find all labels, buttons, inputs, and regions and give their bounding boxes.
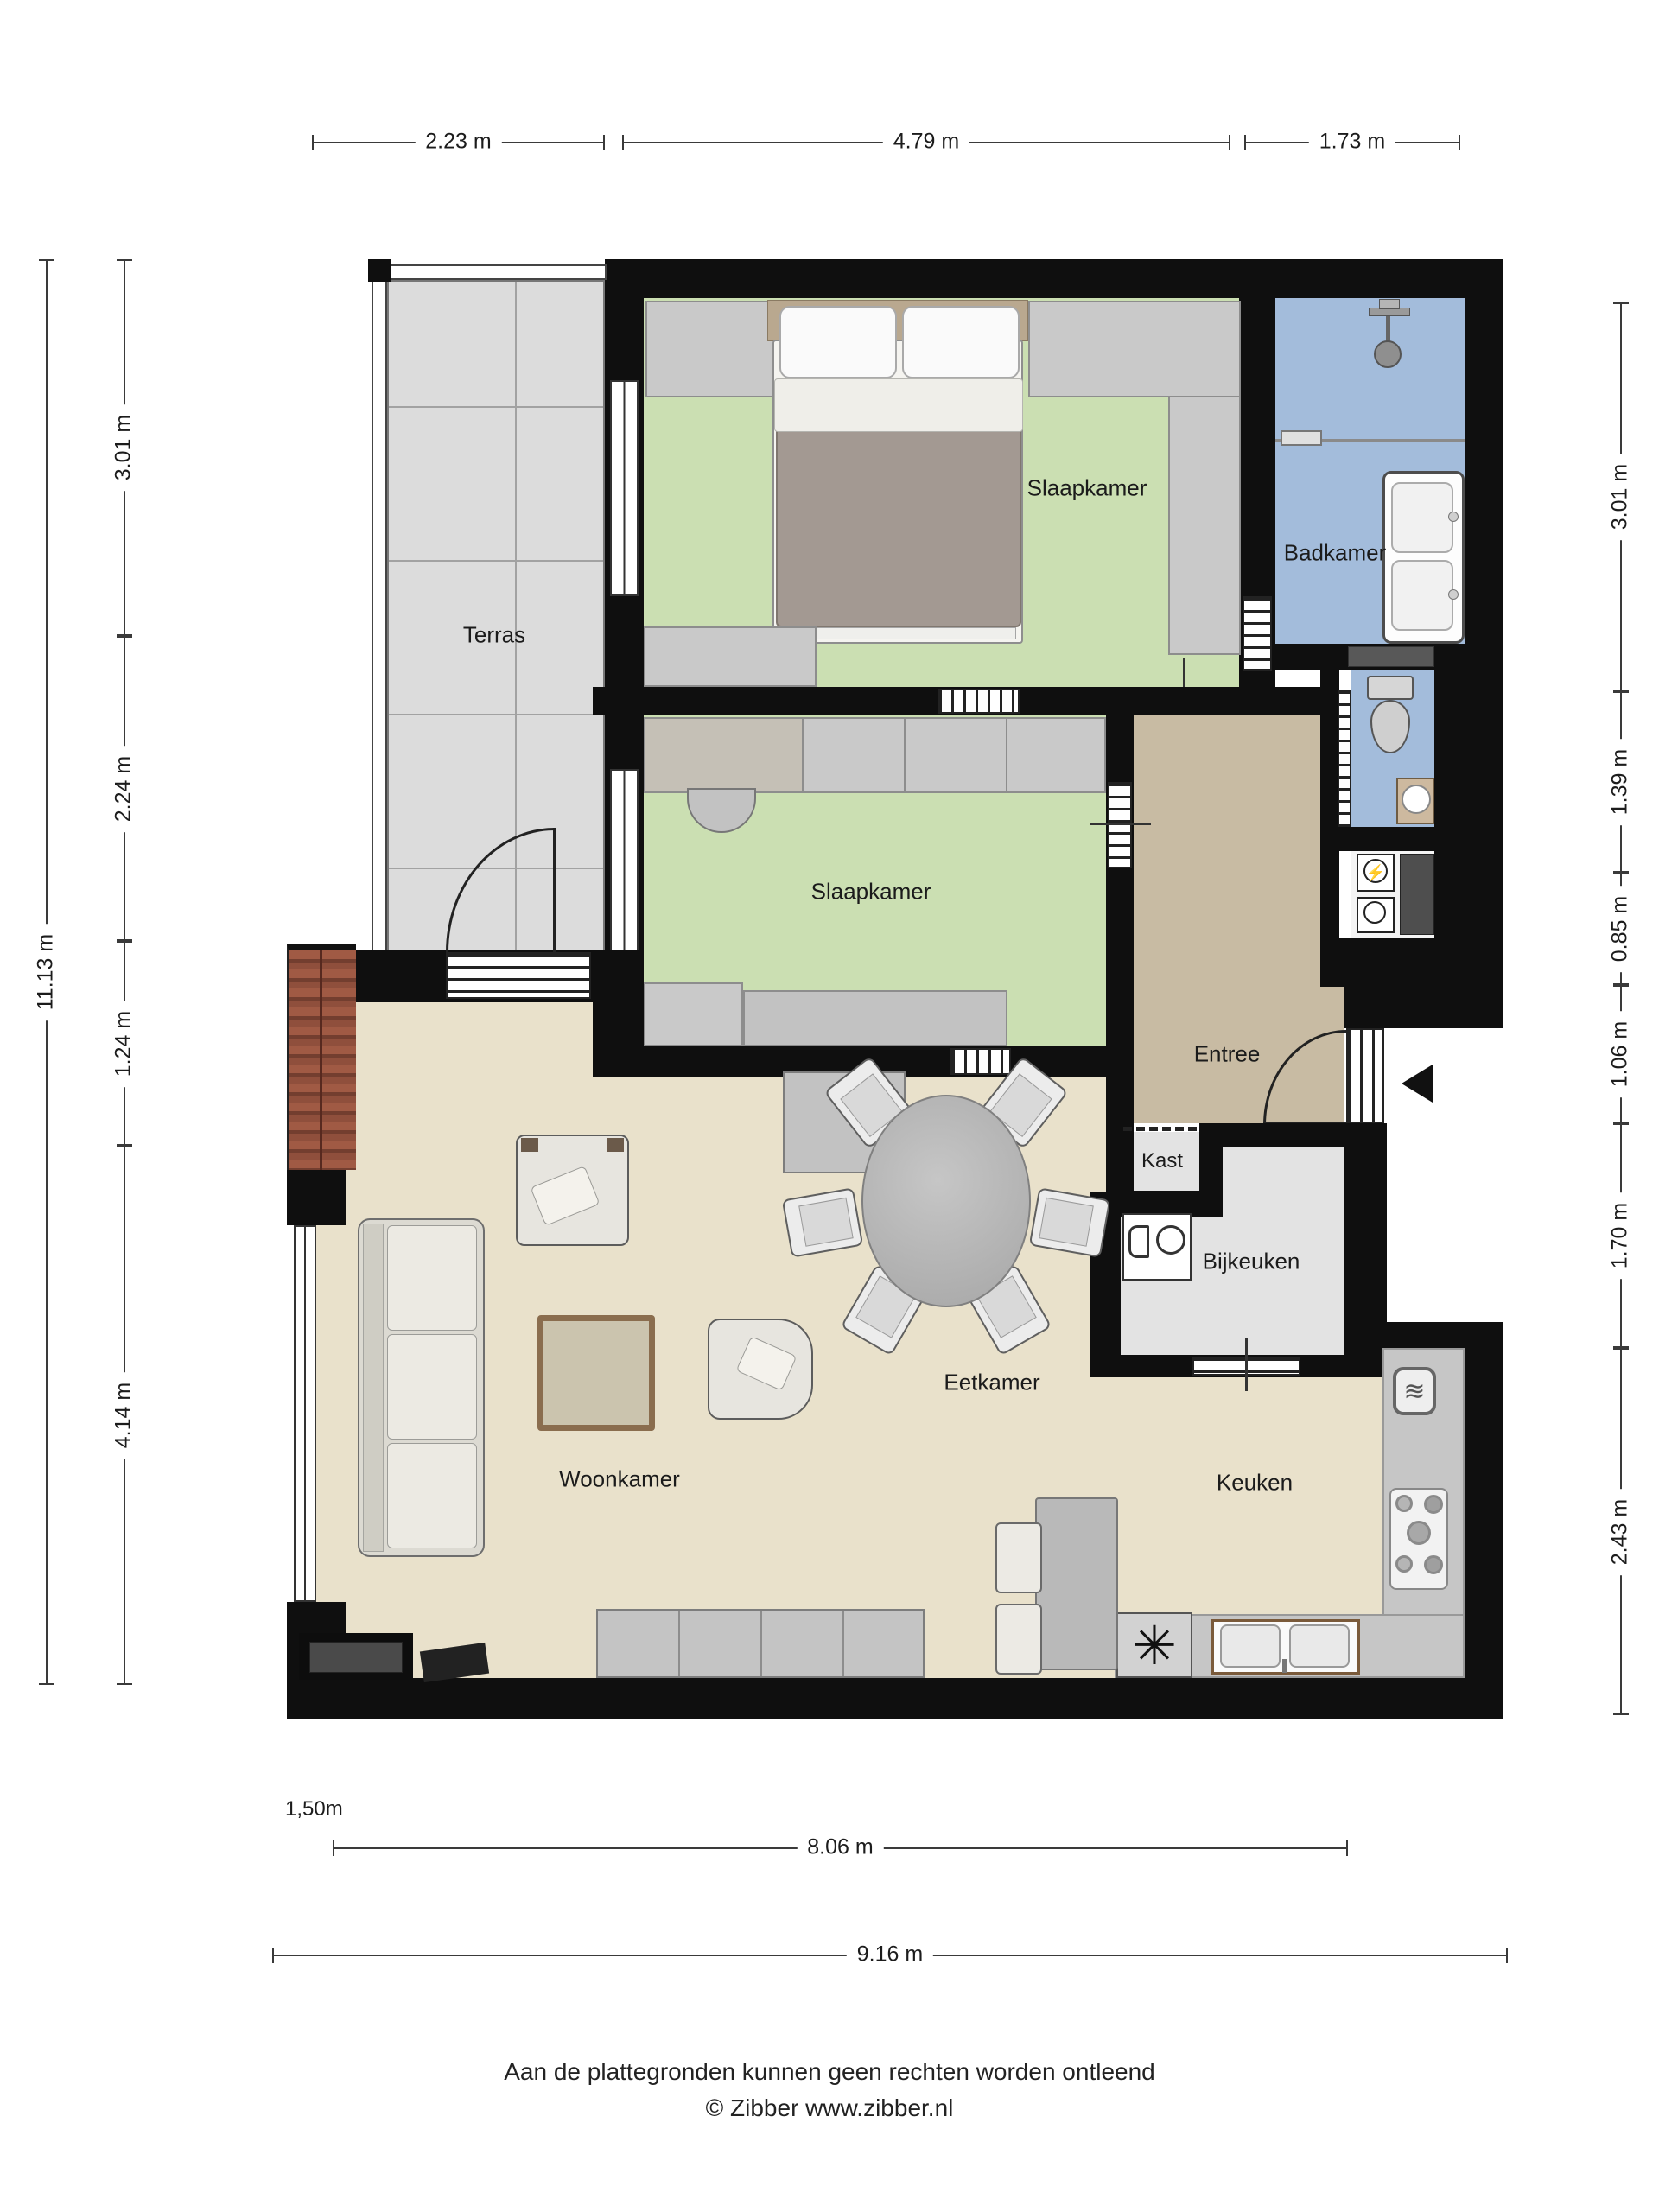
entree-wall-tick: [1090, 823, 1151, 825]
sink-tap-bottom: [1448, 589, 1459, 600]
meter-dial-1: ⚡: [1363, 859, 1388, 883]
dim-left-3: 1.24 m: [124, 941, 125, 1146]
kast-dashed-line: [1123, 1127, 1210, 1131]
wardrobe-slaapkamer2: [802, 717, 1106, 793]
kitchen-table: [1035, 1497, 1118, 1670]
wall-kast-right: [1199, 1123, 1223, 1191]
dining-chair-4: [1029, 1187, 1111, 1258]
dim-bottom-inner: 8.06 m: [333, 1847, 1348, 1849]
hob-burner-2: [1424, 1495, 1443, 1514]
terras-grid-h1: [389, 406, 603, 408]
toilet-tank: [1367, 676, 1414, 700]
label-eetkamer: Eetkamer: [944, 1370, 1039, 1396]
label-keuken: Keuken: [1217, 1470, 1293, 1497]
dim-right-3: 0.85 m: [1620, 873, 1622, 985]
sofa-back: [363, 1224, 384, 1552]
hob-burner-4: [1395, 1555, 1413, 1573]
badkamer-door-opening: [1243, 596, 1272, 671]
dim-top-3: 1.73 m: [1244, 142, 1460, 143]
label-slaapkamer2: Slaapkamer: [811, 879, 931, 906]
terras-corner-post: [368, 259, 391, 282]
dim-top-2: 4.79 m: [622, 142, 1230, 143]
label-kast: Kast: [1141, 1149, 1183, 1173]
bed-pillow-left: [779, 306, 897, 378]
hob-burner-1: [1395, 1495, 1413, 1512]
wardrobe2-seam1: [904, 719, 906, 791]
wall-slaapkamer2-left-col: [593, 1002, 644, 1077]
front-door-frame: [1346, 1028, 1384, 1123]
entree-floor-a: [1134, 715, 1320, 987]
desk: [644, 717, 804, 793]
wall-entree-top: [1106, 687, 1320, 715]
wardrobe2-seam2: [1006, 719, 1007, 791]
roof-tiles-seam: [320, 950, 322, 1170]
terras-grid-h3: [389, 714, 603, 715]
terras-railing-left: [372, 264, 387, 956]
wardrobe-right: [1028, 301, 1241, 397]
footer-credit: © Zibber www.zibber.nl: [0, 2094, 1659, 2122]
hob-burner-3: [1407, 1521, 1431, 1545]
wardrobe-left: [645, 301, 775, 397]
terras-wall-window-lower: [610, 769, 639, 972]
dim-right-4: 1.06 m: [1620, 985, 1622, 1123]
bed-pillow-right: [902, 306, 1020, 378]
slaapkamer1-door-opening: [938, 689, 1020, 714]
heater-icon: ≋: [1393, 1367, 1436, 1415]
dining-chair-3: [782, 1187, 864, 1258]
meterkast-panel: [1400, 854, 1434, 935]
meter-dial-2: [1363, 901, 1386, 924]
sink-bowl-top: [1391, 482, 1453, 553]
wall-below-meterkast: [1320, 938, 1503, 987]
slaapkamer2-opening: [950, 1048, 1011, 1075]
dim-bottom-offset-label: 1,50m: [285, 1797, 343, 1821]
terras-railing-top: [372, 264, 607, 280]
dim-right-1: 3.01 m: [1620, 302, 1622, 691]
dim-right-2: 1.39 m: [1620, 691, 1622, 873]
wall-bottom: [287, 1678, 1503, 1719]
hob-burner-5: [1424, 1555, 1443, 1574]
wall-wc-right-filler: [1434, 670, 1465, 938]
dresser-small: [644, 982, 743, 1046]
kitchen-sink-bowl-left: [1220, 1624, 1281, 1668]
label-slaapkamer1: Slaapkamer: [1027, 475, 1147, 502]
slaapkamer1-dresser: [644, 626, 817, 687]
kitchen-chair-2: [995, 1604, 1042, 1675]
wall-left-mid: [287, 1170, 346, 1225]
label-woonkamer: Woonkamer: [559, 1466, 680, 1493]
dim-bottom-outer: 9.16 m: [272, 1955, 1508, 1956]
living-window-left: [294, 1225, 316, 1602]
kitchen-sink-bowl-right: [1289, 1624, 1350, 1668]
entree-door-opening: [1108, 782, 1132, 868]
dining-table: [861, 1095, 1031, 1307]
dim-left-2: 2.24 m: [124, 636, 125, 941]
badkamer-radiator: [1348, 646, 1434, 667]
fan-appliance: ✳: [1116, 1612, 1192, 1678]
dim-top-1: 2.23 m: [312, 142, 605, 143]
sofa-cushion-1: [387, 1225, 477, 1331]
bed-duvet-fold: [774, 378, 1023, 432]
sideboard-seam2: [760, 1611, 762, 1676]
wardrobe-right-l: [1168, 396, 1241, 655]
wall-wc-meterkast: [1320, 827, 1465, 851]
sideboard-seam3: [842, 1611, 844, 1676]
tv-screen-wall: [309, 1642, 403, 1673]
dim-left-total: 11.13 m: [46, 259, 48, 1685]
wall-right-lower: [1465, 1322, 1503, 1719]
wall-top: [605, 259, 1503, 298]
label-bijkeuken: Bijkeuken: [1203, 1249, 1300, 1275]
wall-notch-top: [1344, 987, 1503, 1028]
armchair-top-arm-left: [521, 1138, 538, 1152]
wall-bijkeuken-top: [1223, 1123, 1344, 1147]
terras-wall-window-upper: [610, 380, 639, 596]
shower-stem: [1386, 316, 1390, 342]
shower-head-icon: [1374, 340, 1402, 368]
bijkeuken-tick: [1245, 1338, 1248, 1391]
dim-left-1: 3.01 m: [124, 259, 125, 636]
terras-door-threshold: [446, 952, 591, 999]
floorplan-page: ⚡ ≋ ✳: [0, 0, 1659, 2212]
wc-window: [1338, 690, 1351, 828]
label-terras: Terras: [463, 622, 525, 649]
kitchen-tap: [1282, 1659, 1287, 1673]
bed-duvet: [776, 420, 1021, 627]
wall-bijkeuken-right: [1344, 1123, 1387, 1377]
dim-right-5: 1.70 m: [1620, 1123, 1622, 1348]
sink-tap-top: [1448, 512, 1459, 522]
label-entree: Entree: [1194, 1041, 1261, 1068]
sink-bowl-bottom: [1391, 560, 1453, 631]
badkamer-shelf: [1281, 430, 1322, 446]
wall-wc-left: [1320, 670, 1339, 938]
terras-grid-h2: [389, 560, 603, 562]
washing-machine-drum: [1156, 1225, 1185, 1255]
shower-valve: [1379, 299, 1400, 309]
dresser-long: [743, 990, 1007, 1046]
washing-machine-door: [1128, 1225, 1149, 1258]
footer-disclaimer: Aan de plattegronden kunnen geen rechten…: [0, 2058, 1659, 2086]
armchair-top-arm-right: [607, 1138, 624, 1152]
sideboard-seam1: [678, 1611, 680, 1676]
sofa-cushion-3: [387, 1443, 477, 1548]
terras-door-leaf: [553, 828, 556, 954]
corner-sink-bowl: [1402, 785, 1431, 814]
kitchen-chair-1: [995, 1522, 1042, 1593]
dim-right-6: 2.43 m: [1620, 1348, 1622, 1715]
coffee-table: [537, 1315, 655, 1431]
dim-left-4: 4.14 m: [124, 1146, 125, 1685]
label-badkamer: Badkamer: [1284, 540, 1387, 567]
entrance-arrow-icon: [1402, 1065, 1433, 1103]
living-floor-window-strip: [315, 1205, 346, 1611]
sofa-cushion-2: [387, 1334, 477, 1440]
